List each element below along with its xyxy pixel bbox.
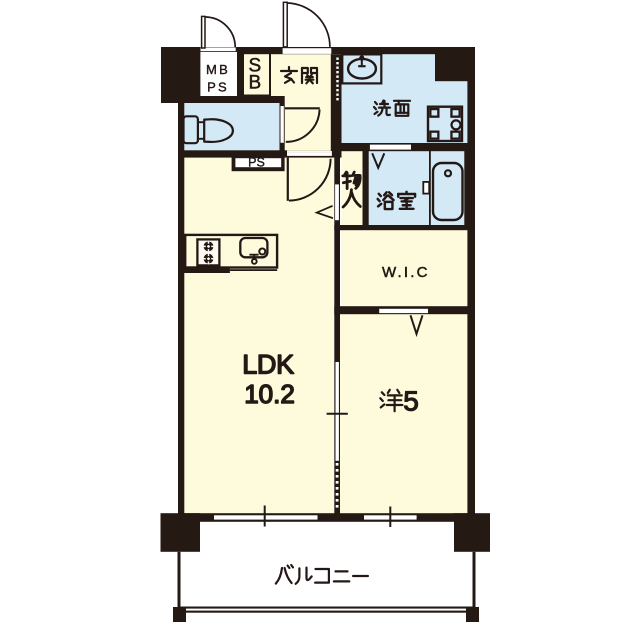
svg-text:LDK: LDK	[242, 349, 294, 379]
svg-text:10.2: 10.2	[244, 379, 295, 409]
svg-text:B: B	[248, 73, 261, 94]
svg-text:W.I.C: W.I.C	[382, 264, 430, 281]
svg-text:PS: PS	[207, 80, 229, 95]
svg-text:5: 5	[403, 385, 419, 416]
svg-text:PS: PS	[248, 156, 265, 170]
svg-text:MB: MB	[206, 62, 230, 77]
